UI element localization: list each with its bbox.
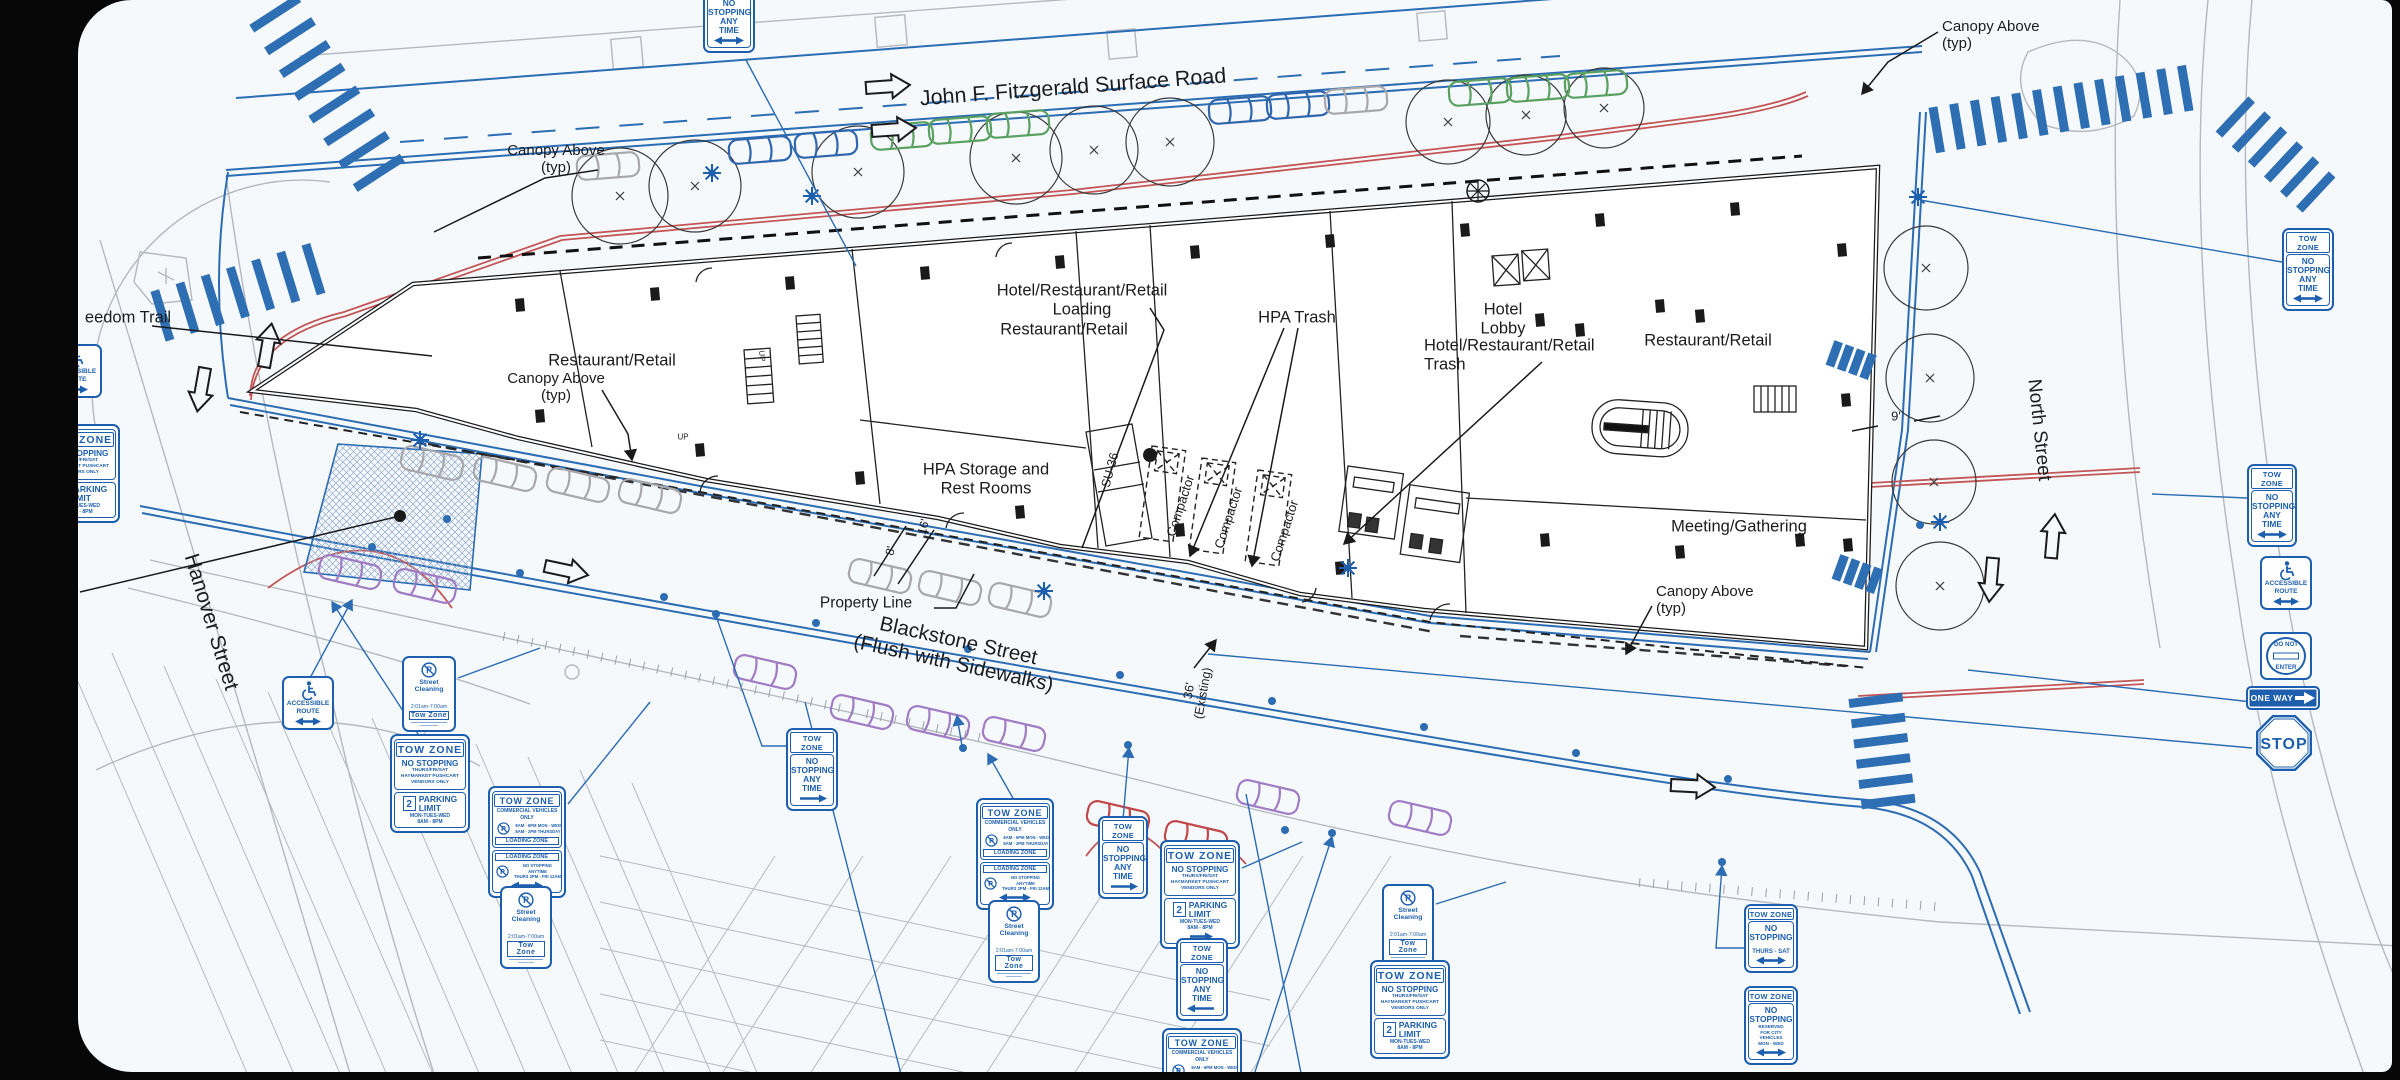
svg-text:STOP: STOP xyxy=(2260,736,2307,753)
sign-do_not_enter: DO NOTENTER xyxy=(2260,632,2312,680)
label-canopy-top-left: Canopy Above (typ) xyxy=(507,143,605,177)
sign-tow_thurs_sat: TOW ZONENOSTOPPINGTHURS - SAT xyxy=(1744,904,1798,973)
label-canopy-left-center: Canopy Above (typ) xyxy=(507,371,605,405)
sign-tow_any: TOW ZONENOSTOPPINGANYTIME xyxy=(2247,464,2297,547)
label-hpa-storage: HPA Storage and Rest Rooms xyxy=(923,460,1049,497)
sign-tow_commercial: TOW ZONECOMMERCIAL VEHICLESONLYP8AM - 6P… xyxy=(976,798,1054,910)
label-canopy-top-right: Canopy Above (typ) xyxy=(1942,19,2040,53)
sign-tow_haymarket: TOW ZONENO STOPPINGTHURS/FRI/SATHAYMARKE… xyxy=(390,734,470,833)
sign-tow_any: TOW ZONENOSTOPPINGANYTIME xyxy=(1176,938,1228,1021)
label-meeting-gathering: Meeting/Gathering xyxy=(1671,518,1807,537)
label-restaurant-retail-left: Restaurant/Retail xyxy=(548,352,675,371)
sign-tow_haymarket: TOW ZONENO STOPPINGTHURS/FRI/SATHAYMARKE… xyxy=(1160,840,1240,949)
sign-street_cleaning: PStreet Cleaning2:01am-7:00amTow Zone xyxy=(988,900,1040,983)
label-hotel-restaurant-retail-trash: Hotel/Restaurant/Retail Trash xyxy=(1424,336,1595,373)
sign-tow_commercial: TOW ZONECOMMERCIAL VEHICLESONLYP8AM - 6P… xyxy=(1162,1028,1242,1072)
sign-tow_any: TOW ZONENOSTOPPINGANYTIME xyxy=(703,0,755,53)
label-freedom-trail: eedom Trail xyxy=(85,309,171,328)
sign-one_way: ONE WAY xyxy=(2246,686,2320,710)
label-property-line: Property Line xyxy=(820,594,912,612)
label-dim-9ft: 9' xyxy=(1891,410,1901,425)
plan-world: John F. Fitzgerald Surface RoadBlackston… xyxy=(78,0,2392,1072)
label-up-2: UP xyxy=(677,432,688,441)
sign-tow_any: TOW ZONENOSTOPPINGANYTIME xyxy=(786,728,838,811)
sign-tow_city: TOW ZONENOSTOPPINGRESERVEDFOR CITY VEHIC… xyxy=(1744,986,1798,1065)
label-canopy-bottom-right: Canopy Above (typ) xyxy=(1656,584,1754,618)
sign-street_cleaning: PStreet Cleaning2:01am-7:00amTow Zone xyxy=(402,656,456,732)
sign-tow_haymarket: TOW ZONENO STOPPINGTHURS/FRI/SATHAYMARKE… xyxy=(1370,960,1450,1059)
label-hpa-trash: HPA Trash xyxy=(1258,309,1336,328)
sign-accessible: ACCESSIBLEROUTE xyxy=(2260,556,2312,610)
sign-tow_any: TOW ZONENOSTOPPINGANYTIME xyxy=(1098,816,1148,899)
sign-accessible: ACCESSIBLEROUTE xyxy=(78,344,102,398)
drawing-paper: John F. Fitzgerald Surface RoadBlackston… xyxy=(78,0,2392,1072)
sign-stop: STOP xyxy=(2252,712,2316,779)
sign-street_cleaning: PStreet Cleaning2:01am-7:00amTow Zone xyxy=(500,886,552,969)
building-footprint xyxy=(252,167,1878,648)
sign-tow_any: TOW ZONENOSTOPPINGANYTIME xyxy=(2282,228,2334,311)
sign-tow_haymarket: TOW ZONENO STOPPINGTHURS/FRI/SATHAYMARKE… xyxy=(78,424,120,523)
label-hotel-restaurant-retail-loading: Hotel/Restaurant/Retail Loading xyxy=(997,281,1168,318)
label-hotel-lobby: Hotel Lobby xyxy=(1481,300,1526,337)
sign-accessible: ACCESSIBLEROUTE xyxy=(282,676,334,730)
sign-tow_commercial: TOW ZONECOMMERCIAL VEHICLESONLYP8AM - 6P… xyxy=(488,786,566,898)
label-restaurant-retail-right: Restaurant/Retail xyxy=(1644,332,1771,351)
site-plan-screenshot: John F. Fitzgerald Surface RoadBlackston… xyxy=(0,0,2400,1080)
label-up-1: UP xyxy=(757,350,767,362)
label-restaurant-retail-mid: Restaurant/Retail xyxy=(1000,321,1127,340)
sign-street_cleaning: PStreet Cleaning2:01am-7:00amTow Zone xyxy=(1382,884,1434,967)
